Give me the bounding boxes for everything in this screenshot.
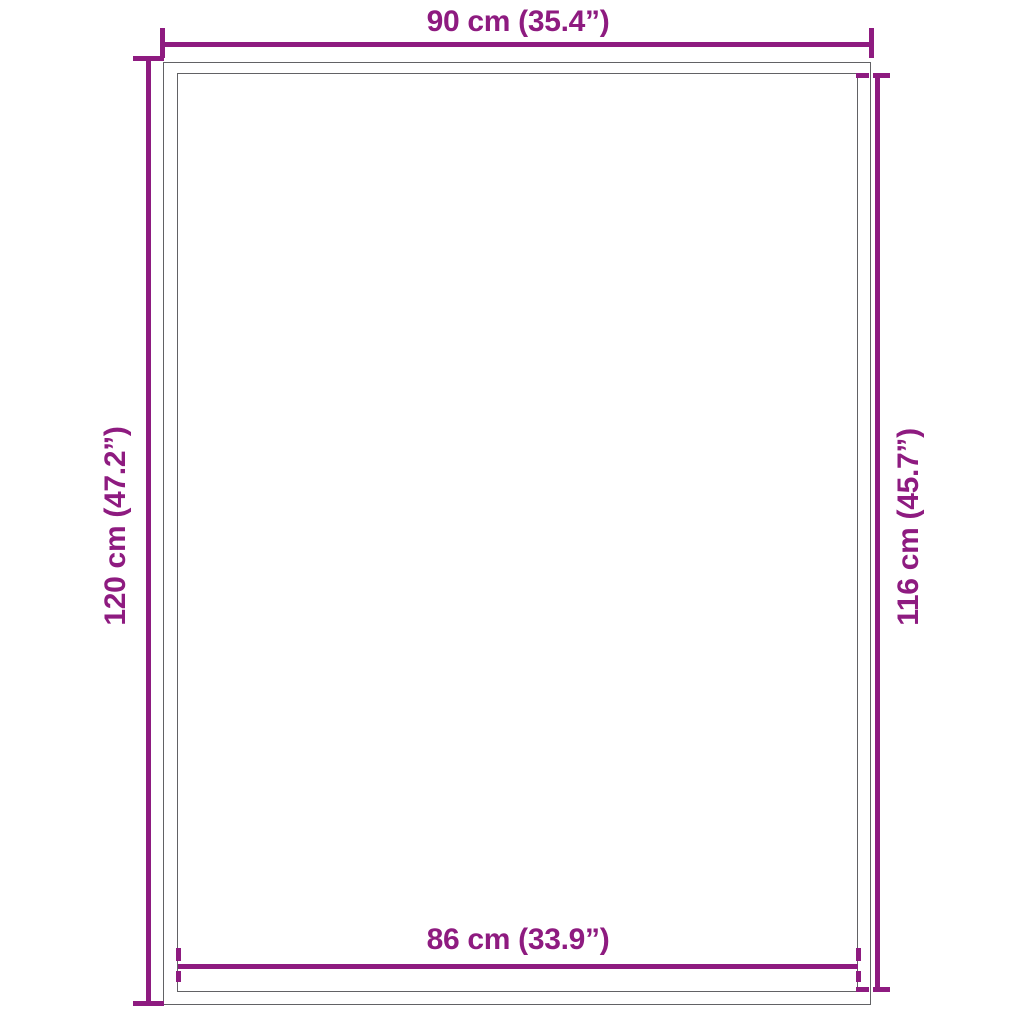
dimension-tick-top-left bbox=[160, 28, 165, 58]
dimension-label-right: 116 cm (45.7”) bbox=[894, 428, 924, 626]
dimension-tick-right-top-dash bbox=[856, 73, 869, 78]
dimension-tick-bottom-right-dash bbox=[856, 948, 861, 961]
dimension-tick-right-bottom-dash bbox=[856, 987, 869, 992]
dimension-line-right bbox=[875, 75, 880, 990]
dimension-label-bottom: 86 cm (33.9”) bbox=[427, 925, 610, 955]
dimension-tick-bottom-left-dash bbox=[176, 971, 181, 982]
dimension-tick-right-top-dash bbox=[873, 73, 890, 78]
dimension-label-top: 90 cm (35.4”) bbox=[427, 7, 610, 37]
dimension-tick-bottom-left-dash bbox=[176, 948, 181, 961]
dimension-line-bottom bbox=[178, 964, 858, 969]
dimension-tick-bottom-right-dash bbox=[856, 971, 861, 982]
dimension-tick-left-bottom bbox=[133, 1001, 164, 1006]
dimension-tick-top-right bbox=[869, 28, 874, 58]
dimension-line-top bbox=[163, 42, 871, 47]
dimension-tick-right-bottom-dash bbox=[873, 987, 890, 992]
dimension-label-left: 120 cm (47.2”) bbox=[101, 426, 131, 625]
dimension-tick-left-top bbox=[133, 56, 164, 61]
dimension-diagram: 90 cm (35.4”) 120 cm (47.2”) 116 cm (45.… bbox=[0, 0, 1024, 1024]
dimension-line-left bbox=[146, 58, 151, 1004]
inner-rectangle bbox=[177, 73, 858, 992]
